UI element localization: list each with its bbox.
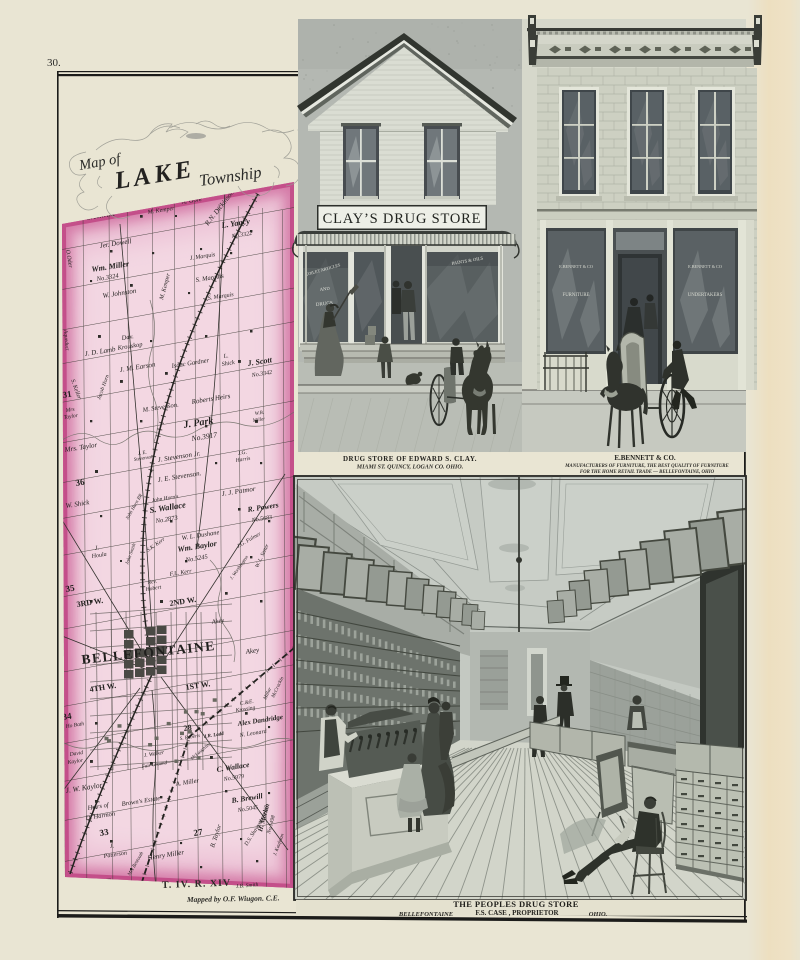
svg-text:DRUG STORE OF EDWARD S. CLAY.: DRUG STORE OF EDWARD S. CLAY.	[343, 455, 477, 463]
svg-text:MIAMI ST. QUINCY, LOGAN CO. OH: MIAMI ST. QUINCY, LOGAN CO. OHIO.	[356, 465, 464, 471]
svg-text:Mapped by O.F. Wiugon. C.E.: Mapped by O.F. Wiugon. C.E.	[186, 893, 280, 904]
svg-text:E.BENNETT & CO.: E.BENNETT & CO.	[614, 454, 676, 462]
svg-text:E.BENNETT & CO: E.BENNETT & CO	[559, 264, 593, 269]
svg-text:30.: 30.	[47, 57, 61, 69]
svg-text:F.S. CASE , PROPRIETOR: F.S. CASE , PROPRIETOR	[475, 909, 559, 917]
svg-text:OHIO.: OHIO.	[589, 911, 608, 918]
svg-text:FURNITURE: FURNITURE	[563, 293, 590, 298]
svg-text:L.: L.	[222, 353, 229, 360]
svg-text:MANUFACTURERS OF FURNITURE, T: MANUFACTURERS OF FURNITURE, THE BEST QUA…	[564, 464, 728, 469]
svg-text:BELLEFONTAINE: BELLEFONTAINE	[398, 911, 454, 918]
svg-text:UNDERTAKERS: UNDERTAKERS	[688, 293, 723, 298]
svg-text:FOR THE HOME RETAIL TRADE —: FOR THE HOME RETAIL TRADE — BELLEFONTAIN…	[580, 470, 715, 475]
svg-text:CLAY’S DRUG STORE: CLAY’S DRUG STORE	[323, 211, 482, 227]
svg-text:THE PEOPLES DRUG STORE: THE PEOPLES DRUG STORE	[453, 899, 579, 909]
svg-text:E.BENNETT & CO: E.BENNETT & CO	[688, 264, 722, 269]
svg-text:28: 28	[183, 723, 192, 733]
